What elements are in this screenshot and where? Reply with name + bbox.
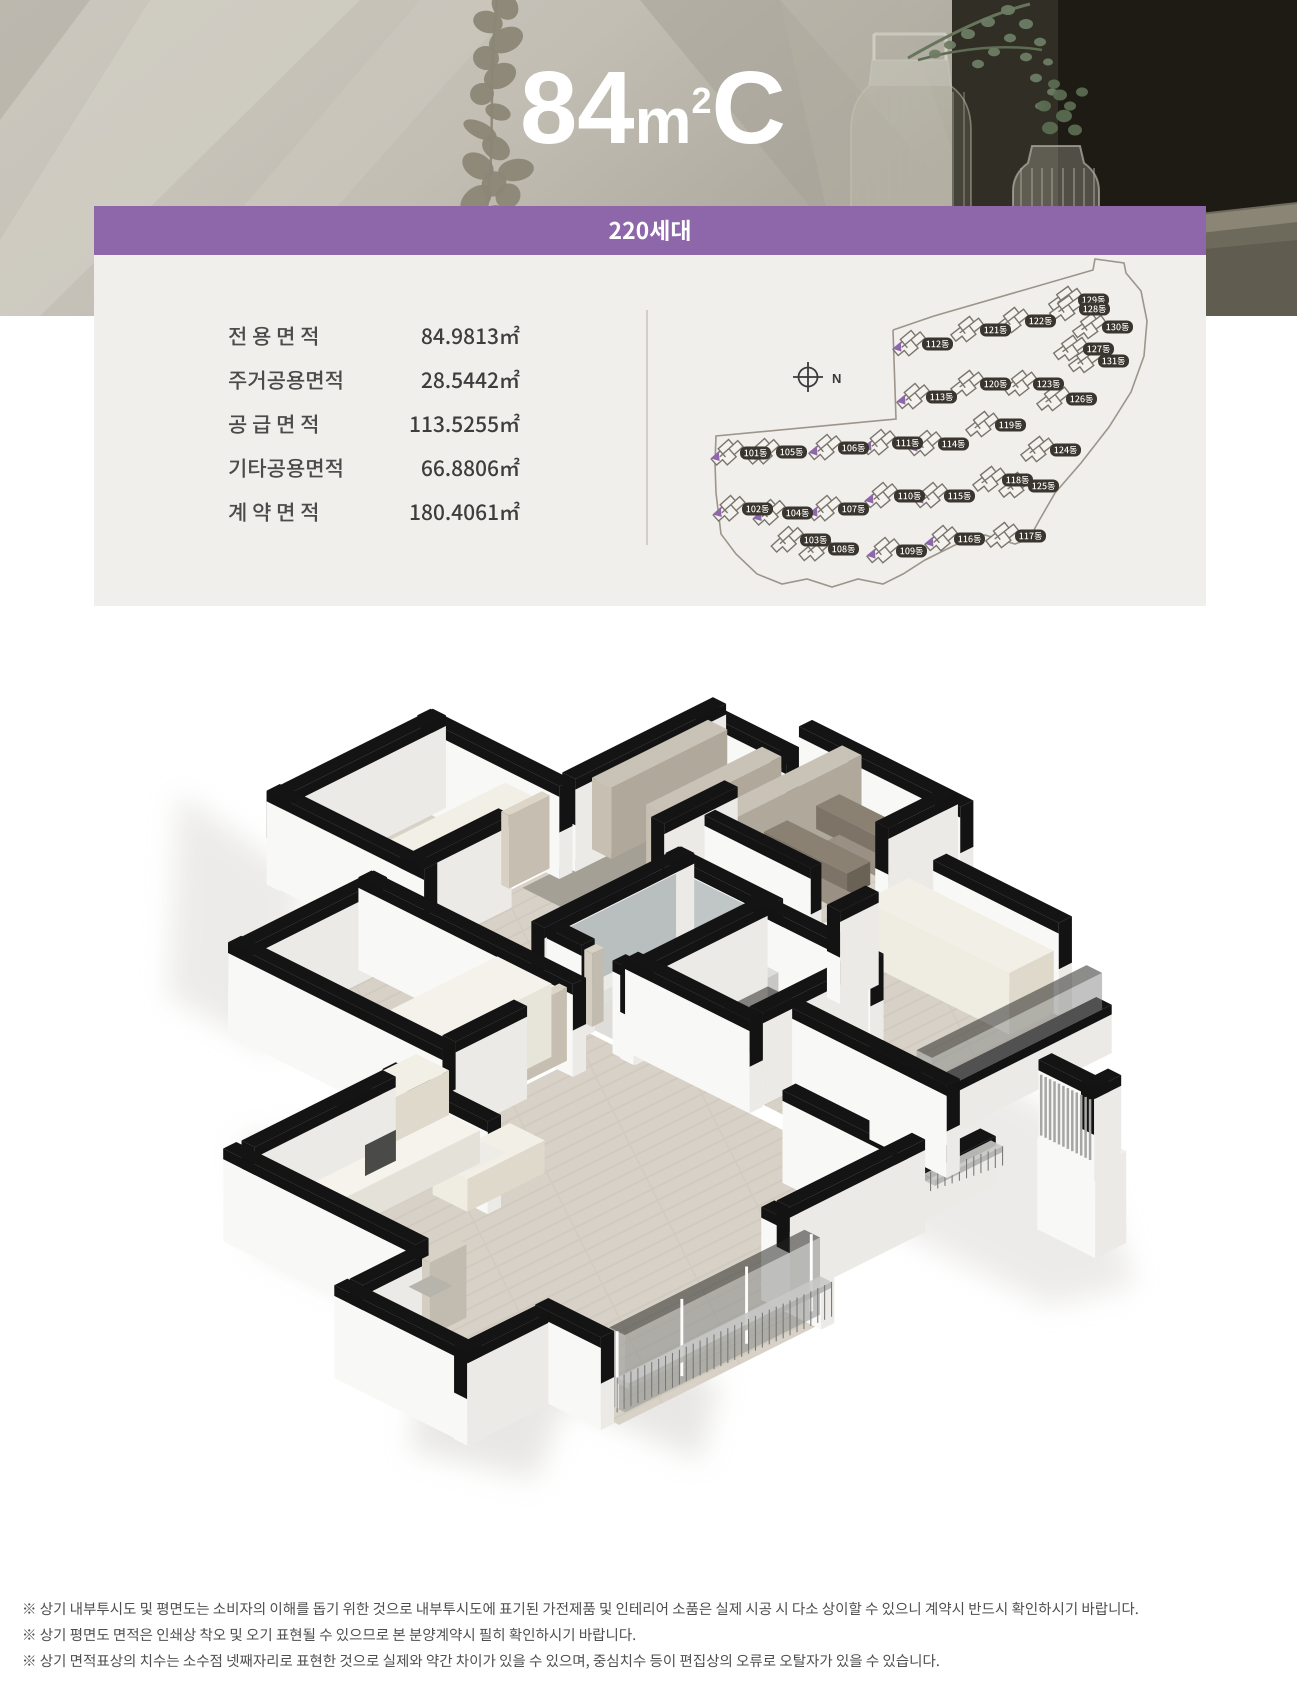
svg-text:N: N — [832, 371, 841, 386]
